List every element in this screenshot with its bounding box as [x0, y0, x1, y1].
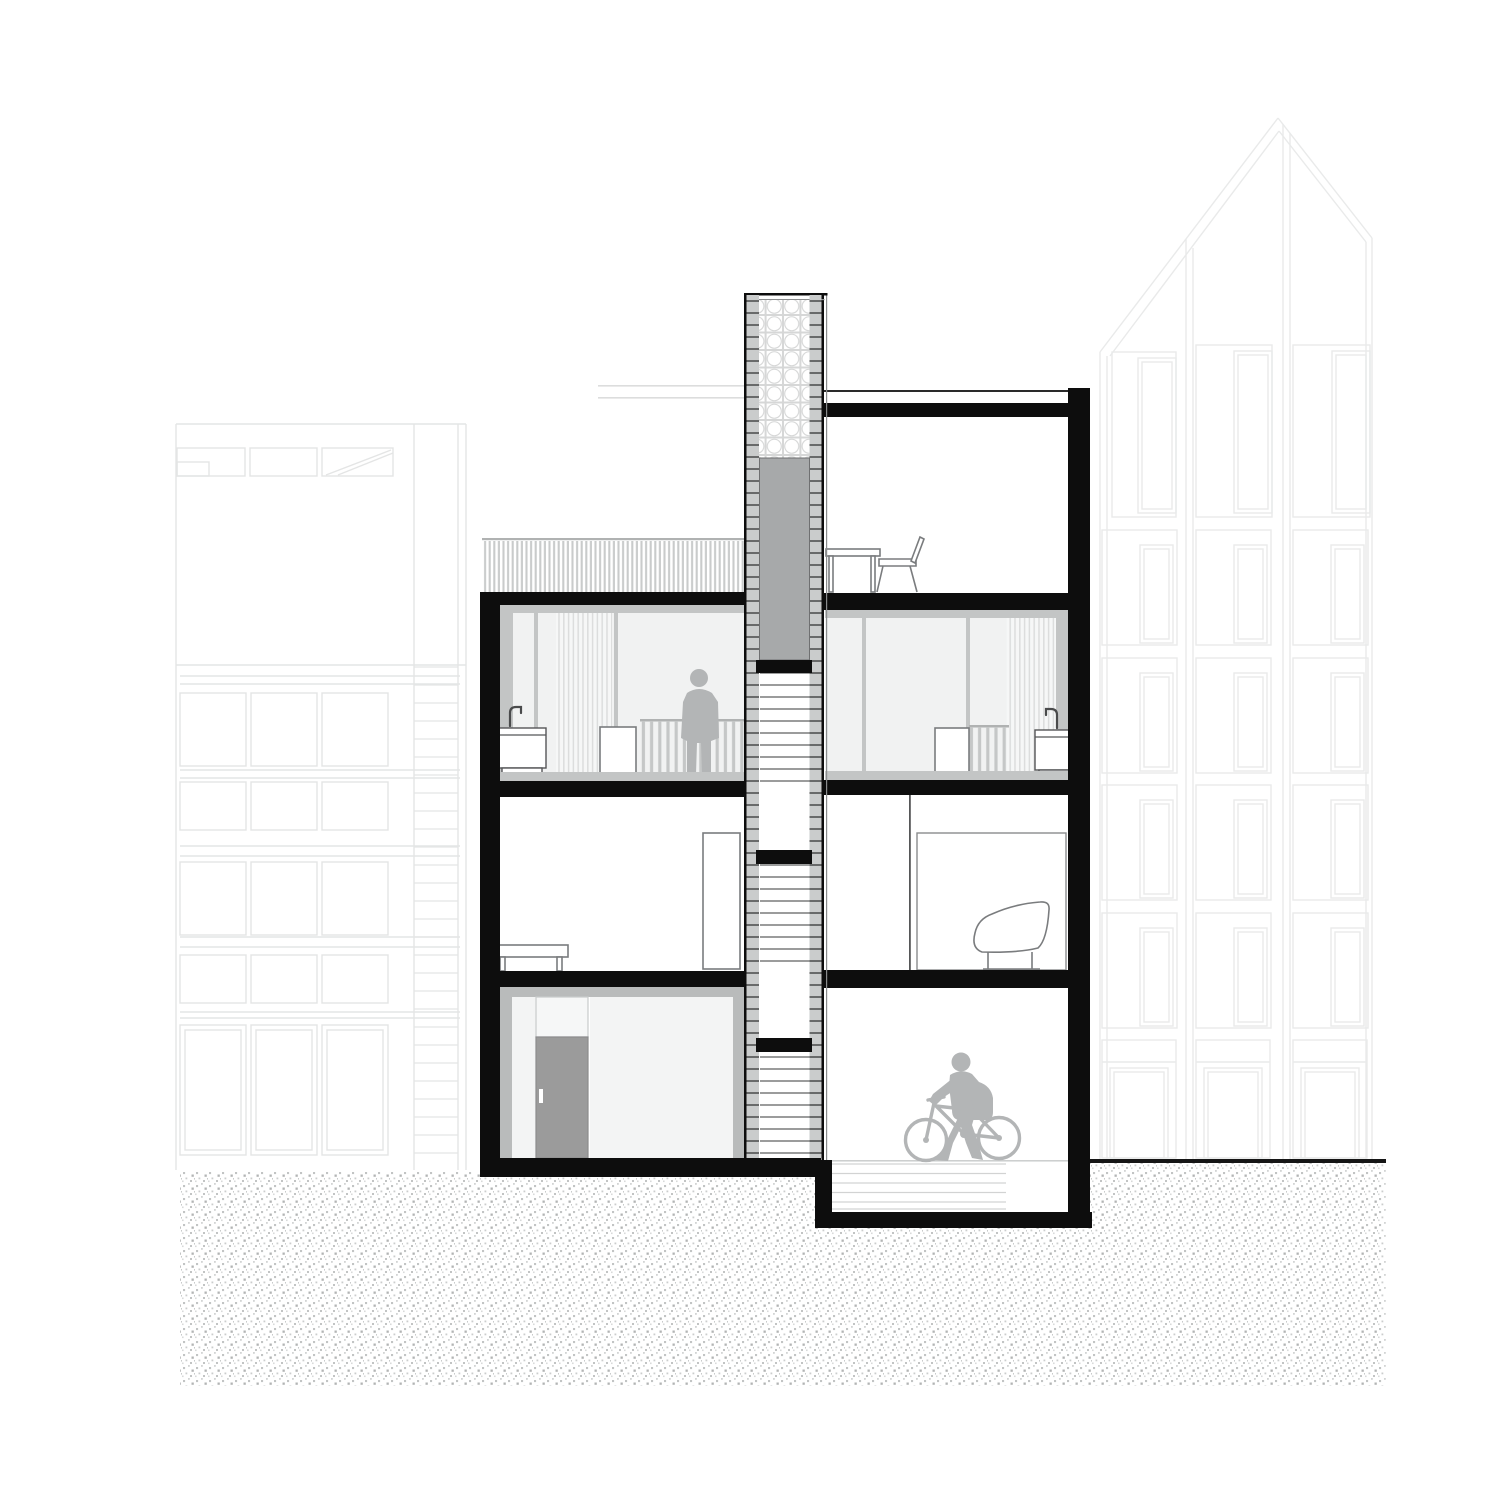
- glass-block-panel: [759, 300, 810, 458]
- ground-slab: [480, 1158, 821, 1177]
- street-level-line: [1088, 1159, 1386, 1163]
- landing-1: [756, 660, 812, 673]
- slab-left-2: [480, 781, 746, 797]
- room-left-middle: [495, 833, 740, 971]
- armchair: [974, 902, 1049, 969]
- stair-run-3: [760, 1052, 810, 1158]
- tall-cabinet: [703, 833, 740, 969]
- stair-core: [744, 293, 828, 1160]
- landing-2: [756, 850, 812, 864]
- slab-right-2: [823, 593, 1068, 610]
- section-drawing-canvas: [0, 0, 1500, 1500]
- core-wall-left: [747, 295, 760, 1158]
- roof-chair: [877, 537, 924, 592]
- background-building-left: [176, 424, 466, 1170]
- transom: [536, 997, 588, 1037]
- roof-table: [826, 549, 880, 556]
- cabinet-left: [600, 727, 636, 775]
- room-left-ground: [500, 987, 746, 1158]
- parapet-lines: [598, 385, 1068, 399]
- partition: [909, 795, 911, 970]
- stair-run-1: [760, 673, 810, 791]
- wall-right: [1068, 388, 1090, 1228]
- core-wall-right: [810, 295, 822, 1158]
- cabinet-right: [935, 728, 969, 775]
- roof-room-furniture: [826, 537, 924, 592]
- room-garage: [832, 988, 1068, 1212]
- bench: [495, 945, 568, 957]
- slab-right-roof: [823, 403, 1090, 417]
- roof-terrace-balustrade: [482, 538, 744, 592]
- room-left-upper: [498, 605, 746, 781]
- elevator-block: [760, 458, 810, 660]
- room-right-middle: [909, 795, 1066, 970]
- background-building-right: [1100, 118, 1372, 1160]
- stair-run-2: [760, 864, 810, 966]
- garage-slab: [815, 1212, 1092, 1228]
- slab-left-roof: [480, 592, 746, 605]
- section-drawing: [0, 0, 1500, 1500]
- landing-3: [756, 1038, 812, 1052]
- room-right-upper: [825, 610, 1075, 780]
- slab-left-3: [480, 971, 746, 987]
- wall-left: [480, 592, 500, 1177]
- balustrade: [969, 727, 1009, 772]
- ground-hatch: [180, 1159, 1386, 1386]
- door-handle: [539, 1089, 543, 1103]
- slab-right-4: [823, 970, 1068, 988]
- slab-right-3: [823, 780, 1068, 795]
- entry-door: [536, 1037, 588, 1158]
- ladder-band: [414, 660, 458, 1156]
